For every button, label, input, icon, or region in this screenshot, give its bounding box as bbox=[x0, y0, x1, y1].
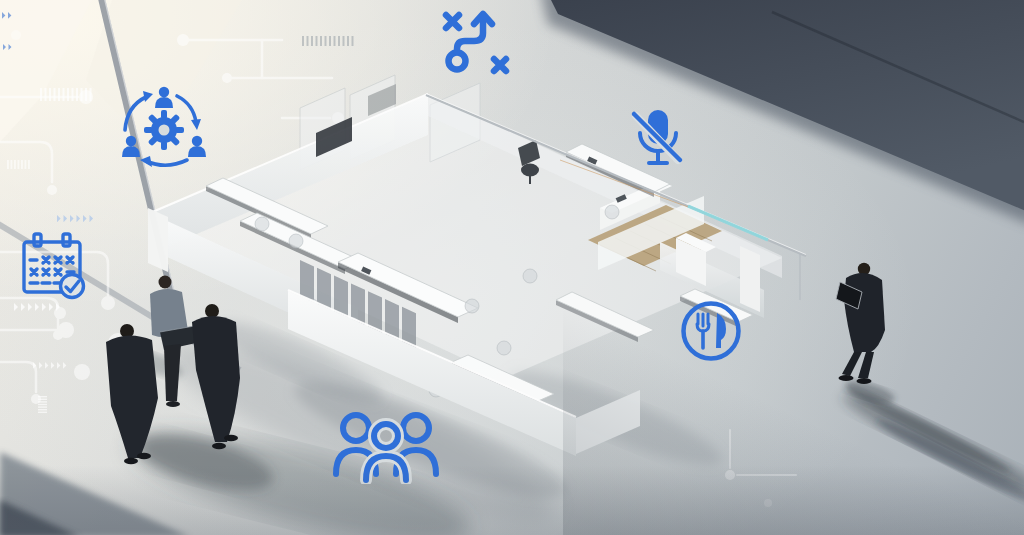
team-group-icon bbox=[330, 400, 442, 488]
fork-icon bbox=[697, 314, 709, 348]
knife-icon bbox=[716, 313, 726, 348]
team-process-icon bbox=[118, 84, 210, 176]
scene-canvas bbox=[0, 0, 1024, 535]
dining-glyph bbox=[684, 304, 739, 359]
mic-glyph bbox=[634, 110, 680, 163]
chevron-row bbox=[33, 362, 66, 369]
dining-icon bbox=[678, 298, 744, 368]
team-group-glyph bbox=[336, 415, 436, 480]
circuit-pattern-floor-right bbox=[725, 430, 796, 507]
strategy-route-icon bbox=[434, 4, 518, 84]
manager-with-tablet bbox=[836, 263, 885, 384]
team-process-glyph bbox=[122, 87, 206, 167]
calendar-check-icon bbox=[16, 226, 92, 308]
mic-muted-icon bbox=[626, 100, 690, 176]
calendar-glyph bbox=[24, 234, 84, 298]
gear-icon bbox=[144, 110, 184, 150]
left-pillar bbox=[148, 208, 168, 272]
listener-right bbox=[192, 304, 240, 449]
strategy-route-glyph bbox=[446, 14, 506, 71]
chevron-row-blue bbox=[57, 215, 93, 222]
